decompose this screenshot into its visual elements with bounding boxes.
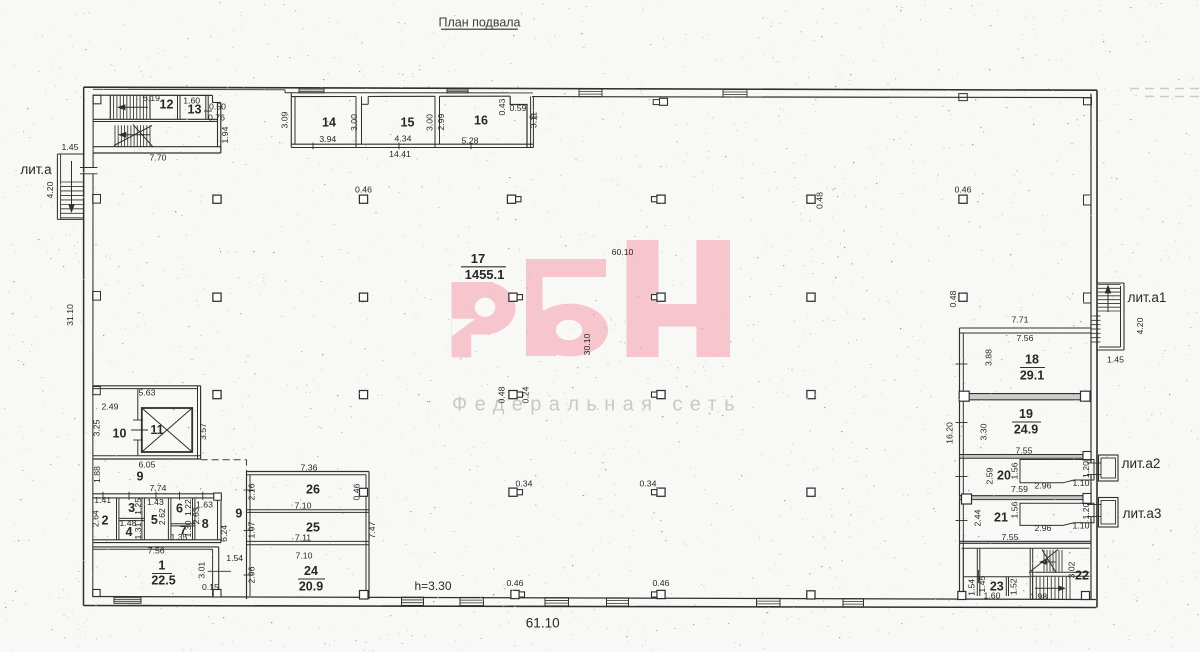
svg-text:1.10: 1.10 bbox=[1073, 520, 1090, 530]
svg-text:3.25: 3.25 bbox=[92, 419, 102, 436]
svg-text:7.10: 7.10 bbox=[295, 501, 312, 511]
svg-text:6.05: 6.05 bbox=[139, 459, 156, 469]
svg-text:2.96: 2.96 bbox=[1035, 481, 1052, 491]
svg-text:0.48: 0.48 bbox=[497, 386, 507, 403]
svg-text:2.63: 2.63 bbox=[191, 507, 201, 524]
svg-text:5.63: 5.63 bbox=[139, 387, 156, 397]
svg-text:4: 4 bbox=[126, 525, 133, 539]
svg-text:24.9: 24.9 bbox=[1014, 423, 1038, 437]
svg-text:0.46: 0.46 bbox=[653, 578, 670, 588]
svg-text:3.30: 3.30 bbox=[979, 423, 989, 440]
svg-text:12: 12 bbox=[160, 98, 174, 112]
svg-text:3.01: 3.01 bbox=[196, 562, 206, 579]
svg-text:7.56: 7.56 bbox=[1017, 333, 1034, 343]
svg-text:7.56: 7.56 bbox=[148, 546, 165, 556]
svg-text:1.31: 1.31 bbox=[133, 522, 143, 539]
svg-text:0.46: 0.46 bbox=[507, 578, 524, 588]
svg-text:30.10: 30.10 bbox=[582, 333, 592, 355]
svg-text:21: 21 bbox=[994, 511, 1008, 525]
svg-text:лит.а2: лит.а2 bbox=[1122, 456, 1161, 471]
svg-text:1.54: 1.54 bbox=[967, 579, 977, 596]
svg-text:7.59: 7.59 bbox=[1011, 484, 1028, 494]
svg-text:7.74: 7.74 bbox=[150, 483, 167, 493]
svg-text:5.28: 5.28 bbox=[462, 135, 479, 145]
svg-text:1.45: 1.45 bbox=[62, 142, 79, 152]
svg-text:Федеральная сеть: Федеральная сеть bbox=[452, 394, 742, 416]
svg-text:1.45: 1.45 bbox=[1107, 355, 1124, 365]
svg-text:22.5: 22.5 bbox=[151, 574, 175, 588]
svg-text:11: 11 bbox=[150, 423, 163, 437]
svg-text:лит.а3: лит.а3 bbox=[1123, 506, 1162, 521]
svg-text:3.11: 3.11 bbox=[529, 112, 539, 128]
svg-text:2.99: 2.99 bbox=[436, 113, 446, 130]
svg-text:10: 10 bbox=[113, 427, 127, 441]
svg-text:лит.а: лит.а bbox=[20, 162, 52, 177]
svg-text:7.55: 7.55 bbox=[1002, 532, 1019, 542]
svg-text:16.20: 16.20 bbox=[945, 422, 955, 444]
svg-text:1.88: 1.88 bbox=[92, 466, 102, 483]
svg-text:1.10: 1.10 bbox=[1073, 478, 1090, 488]
svg-text:2.64: 2.64 bbox=[90, 510, 100, 527]
svg-text:17: 17 bbox=[471, 251, 485, 266]
svg-text:План подвала: План подвала bbox=[438, 16, 520, 30]
svg-text:4.20: 4.20 bbox=[1135, 317, 1145, 334]
svg-text:1.94: 1.94 bbox=[220, 126, 230, 143]
svg-text:2: 2 bbox=[102, 514, 109, 528]
svg-text:3.00: 3.00 bbox=[349, 114, 359, 131]
svg-text:19: 19 bbox=[1019, 407, 1033, 421]
svg-text:29.1: 29.1 bbox=[1020, 369, 1044, 383]
svg-text:4.20: 4.20 bbox=[45, 181, 55, 198]
svg-text:1.52: 1.52 bbox=[1008, 578, 1018, 595]
svg-text:2.49: 2.49 bbox=[102, 402, 119, 412]
svg-text:0.24: 0.24 bbox=[521, 386, 531, 403]
svg-text:лит.а1: лит.а1 bbox=[1128, 290, 1167, 305]
svg-text:1.25: 1.25 bbox=[133, 498, 143, 515]
svg-text:7.71: 7.71 bbox=[1012, 315, 1029, 325]
svg-text:h=3.30: h=3.30 bbox=[414, 579, 451, 593]
svg-text:0.48: 0.48 bbox=[815, 192, 825, 209]
svg-text:7.10: 7.10 bbox=[296, 550, 313, 560]
svg-text:2.16: 2.16 bbox=[247, 483, 257, 500]
svg-text:6.24: 6.24 bbox=[219, 525, 229, 542]
svg-text:1.20: 1.20 bbox=[1081, 461, 1091, 478]
svg-text:3.94: 3.94 bbox=[319, 134, 336, 144]
svg-text:26: 26 bbox=[306, 483, 320, 497]
svg-text:0.76: 0.76 bbox=[208, 112, 225, 122]
svg-text:2.96: 2.96 bbox=[1035, 523, 1052, 533]
svg-text:0.34: 0.34 bbox=[516, 479, 533, 489]
svg-text:0.48: 0.48 bbox=[948, 290, 958, 307]
svg-text:61.10: 61.10 bbox=[526, 616, 560, 631]
svg-text:1455.1: 1455.1 bbox=[465, 267, 505, 282]
svg-text:9: 9 bbox=[137, 470, 144, 484]
svg-text:7.36: 7.36 bbox=[301, 463, 318, 473]
svg-text:1.43: 1.43 bbox=[147, 497, 164, 507]
svg-text:7.47: 7.47 bbox=[367, 521, 377, 538]
svg-text:14: 14 bbox=[322, 116, 336, 130]
svg-text:0.43: 0.43 bbox=[497, 98, 507, 115]
svg-text:3.09: 3.09 bbox=[280, 111, 290, 128]
svg-text:2.59: 2.59 bbox=[985, 467, 995, 484]
svg-text:1.20: 1.20 bbox=[1081, 502, 1091, 519]
svg-text:1.56: 1.56 bbox=[1010, 462, 1020, 479]
svg-text:1: 1 bbox=[158, 559, 165, 573]
svg-text:1.97: 1.97 bbox=[247, 521, 257, 538]
svg-text:0.34: 0.34 bbox=[640, 479, 657, 489]
svg-text:1.35: 1.35 bbox=[171, 532, 188, 542]
svg-text:2.62: 2.62 bbox=[157, 508, 167, 525]
svg-text:22: 22 bbox=[1075, 569, 1089, 583]
svg-text:9: 9 bbox=[235, 507, 242, 521]
svg-text:3.88: 3.88 bbox=[984, 349, 994, 366]
svg-text:8: 8 bbox=[202, 517, 209, 531]
svg-text:0.50: 0.50 bbox=[209, 102, 226, 112]
svg-text:1.60: 1.60 bbox=[183, 95, 200, 105]
svg-text:14.41: 14.41 bbox=[389, 149, 411, 159]
svg-text:15: 15 bbox=[401, 116, 415, 130]
svg-text:7.70: 7.70 bbox=[150, 153, 167, 163]
svg-text:1.60: 1.60 bbox=[984, 590, 1001, 600]
svg-text:3.00: 3.00 bbox=[424, 114, 434, 131]
svg-text:24: 24 bbox=[304, 564, 318, 578]
svg-text:16: 16 bbox=[474, 114, 488, 128]
svg-text:4.34: 4.34 bbox=[395, 134, 412, 144]
svg-text:1.41: 1.41 bbox=[94, 495, 111, 505]
svg-text:2.44: 2.44 bbox=[973, 509, 983, 526]
svg-text:1.54: 1.54 bbox=[226, 553, 243, 563]
svg-text:20.9: 20.9 bbox=[299, 580, 323, 594]
svg-text:3.02: 3.02 bbox=[1067, 561, 1077, 578]
svg-text:31.10: 31.10 bbox=[65, 304, 75, 326]
svg-text:60.10: 60.10 bbox=[612, 247, 634, 257]
svg-text:5.19: 5.19 bbox=[143, 93, 160, 103]
